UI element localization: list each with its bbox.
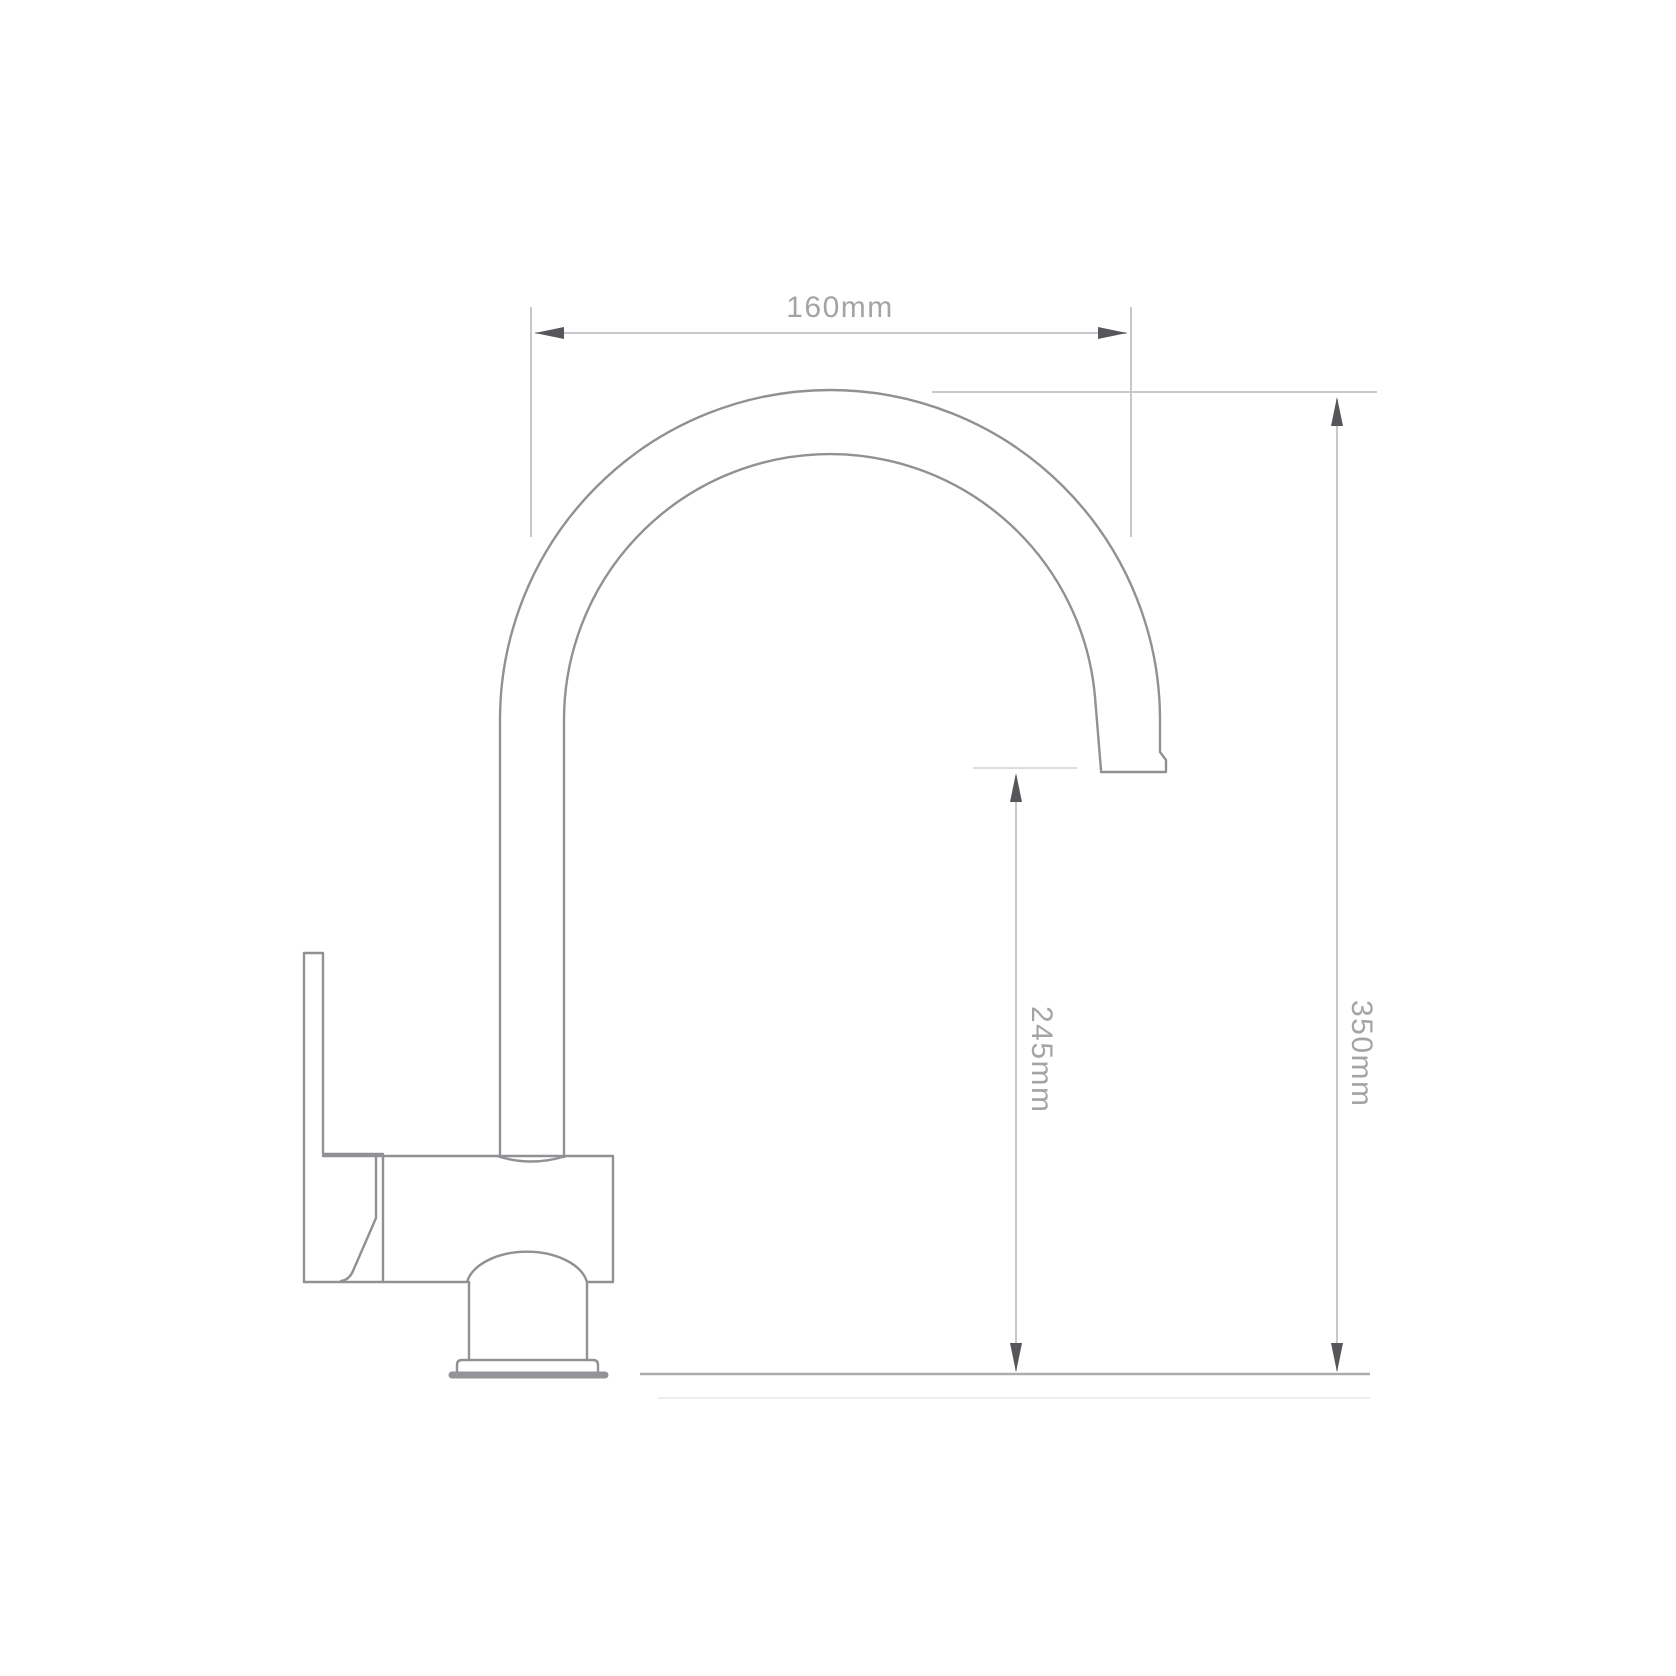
arrow-350-up: [1331, 397, 1343, 426]
body-seam-line: [341, 1156, 376, 1281]
arrow-245-up: [1010, 773, 1022, 802]
arrow-160-left: [535, 327, 564, 339]
faucet-technical-drawing: [0, 0, 1676, 1676]
dome-cap: [467, 1252, 587, 1282]
base-plate: [457, 1360, 598, 1372]
handle-outline: [304, 953, 383, 1282]
dim-350-label: 350mm: [1344, 1000, 1378, 1108]
dim-160-label: 160mm: [770, 291, 910, 325]
dim-245-label: 245mm: [1024, 1006, 1058, 1114]
spout-outer-profile: [500, 390, 1166, 1157]
arrow-160-right: [1098, 327, 1127, 339]
drawing-canvas: 160mm 245mm 350mm: [0, 0, 1676, 1676]
arrow-350-down: [1331, 1343, 1343, 1372]
spout-inner-profile: [564, 454, 1101, 1157]
arrow-245-down: [1010, 1343, 1022, 1372]
